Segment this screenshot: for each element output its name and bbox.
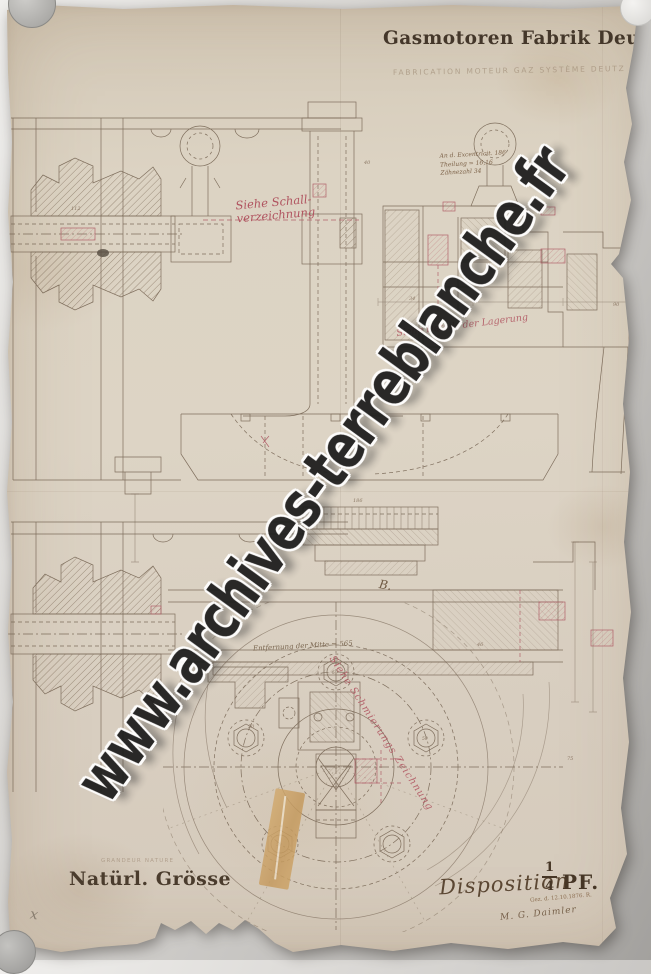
- fraction-denominator: 4: [545, 878, 554, 894]
- bolt-label: 50: [422, 736, 428, 742]
- dimension-label: 112: [71, 206, 81, 212]
- drawing-title: Gasmotoren Fabrik Deutz: [383, 28, 651, 49]
- dimension-label: 186: [353, 498, 363, 504]
- ink-mark-b: B.: [378, 577, 393, 593]
- ink-note-line: Theilung = 16,16: [440, 158, 493, 168]
- scale-unit: PF.: [562, 870, 599, 894]
- dimension-label: 90: [613, 302, 620, 308]
- dimension-label: 40: [363, 160, 371, 166]
- dimension-label: 75: [567, 756, 573, 762]
- ink-note-line: Zähnezahl 34: [440, 168, 481, 177]
- scale-fraction: 1 4: [542, 860, 557, 894]
- corner-pin-bottom-left: [0, 930, 36, 974]
- scale-label: Natürl. Grösse: [69, 868, 231, 890]
- pencil-note-left: GRANDEUR NATURE: [101, 858, 174, 864]
- dimension-label: 50: [248, 724, 255, 730]
- fraction-numerator: 1: [542, 860, 557, 878]
- photographed-drawing-scene: 40 112 34 90 46 186 75 50 50 50 50 Gasmo…: [0, 0, 651, 960]
- dimension-label: 46: [476, 642, 484, 648]
